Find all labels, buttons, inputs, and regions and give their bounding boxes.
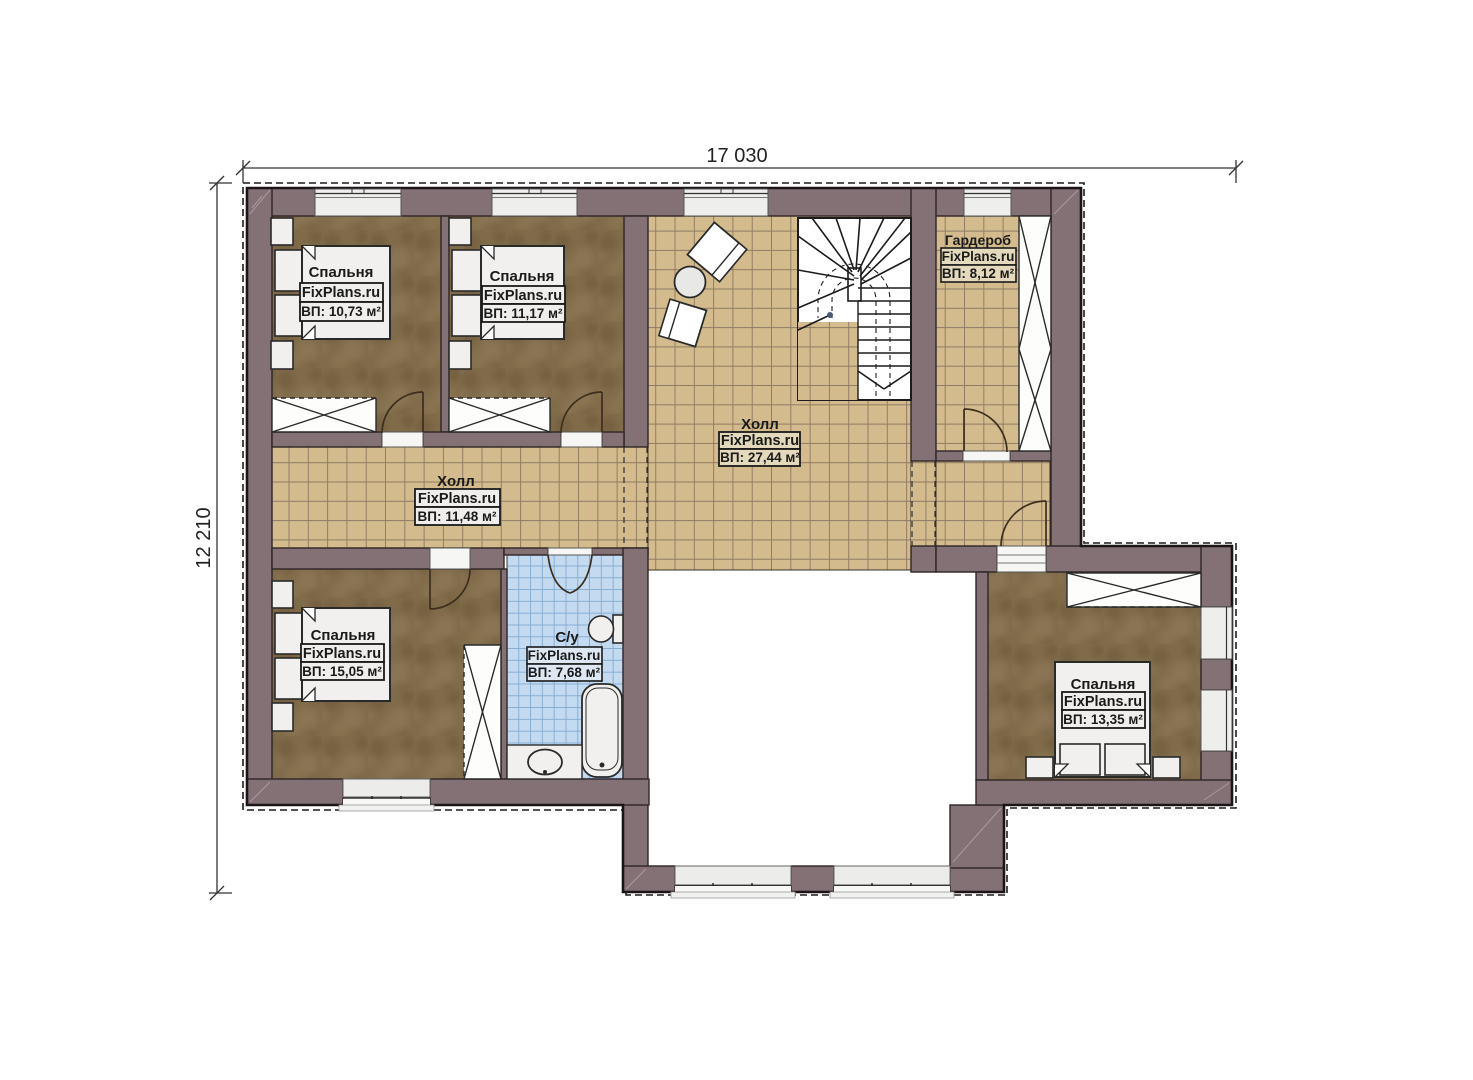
svg-text:FixPlans.ru: FixPlans.ru [942,249,1015,264]
svg-text:FixPlans.ru: FixPlans.ru [721,433,799,449]
svg-text:Спальня: Спальня [490,268,555,285]
svg-text:ВП: 15,05 м²: ВП: 15,05 м² [302,664,382,679]
svg-text:12 210: 12 210 [193,507,215,568]
svg-text:С/у: С/у [555,629,579,646]
svg-text:Спальня: Спальня [309,264,374,281]
svg-text:Спальня: Спальня [311,627,376,644]
svg-text:ВП: 13,35 м²: ВП: 13,35 м² [1063,712,1143,727]
svg-text:FixPlans.ru: FixPlans.ru [418,491,496,507]
svg-text:Спальня: Спальня [1071,676,1136,693]
svg-text:FixPlans.ru: FixPlans.ru [303,646,381,662]
svg-text:FixPlans.ru: FixPlans.ru [484,288,562,304]
svg-text:Гардероб: Гардероб [945,232,1012,248]
svg-text:ВП: 8,12 м²: ВП: 8,12 м² [942,266,1015,281]
svg-text:ВП: 11,17 м²: ВП: 11,17 м² [484,306,563,321]
svg-text:ВП: 11,48 м²: ВП: 11,48 м² [418,509,497,524]
svg-text:ВП: 7,68 м²: ВП: 7,68 м² [528,665,601,680]
svg-text:FixPlans.ru: FixPlans.ru [1064,694,1142,710]
svg-text:FixPlans.ru: FixPlans.ru [528,648,601,663]
svg-text:ВП: 10,73 м²: ВП: 10,73 м² [301,304,381,319]
svg-text:17 030: 17 030 [706,145,767,167]
svg-text:Холл: Холл [437,473,475,490]
svg-text:ВП: 27,44 м²: ВП: 27,44 м² [720,450,800,465]
svg-text:FixPlans.ru: FixPlans.ru [302,285,380,301]
svg-text:Холл: Холл [741,416,779,433]
